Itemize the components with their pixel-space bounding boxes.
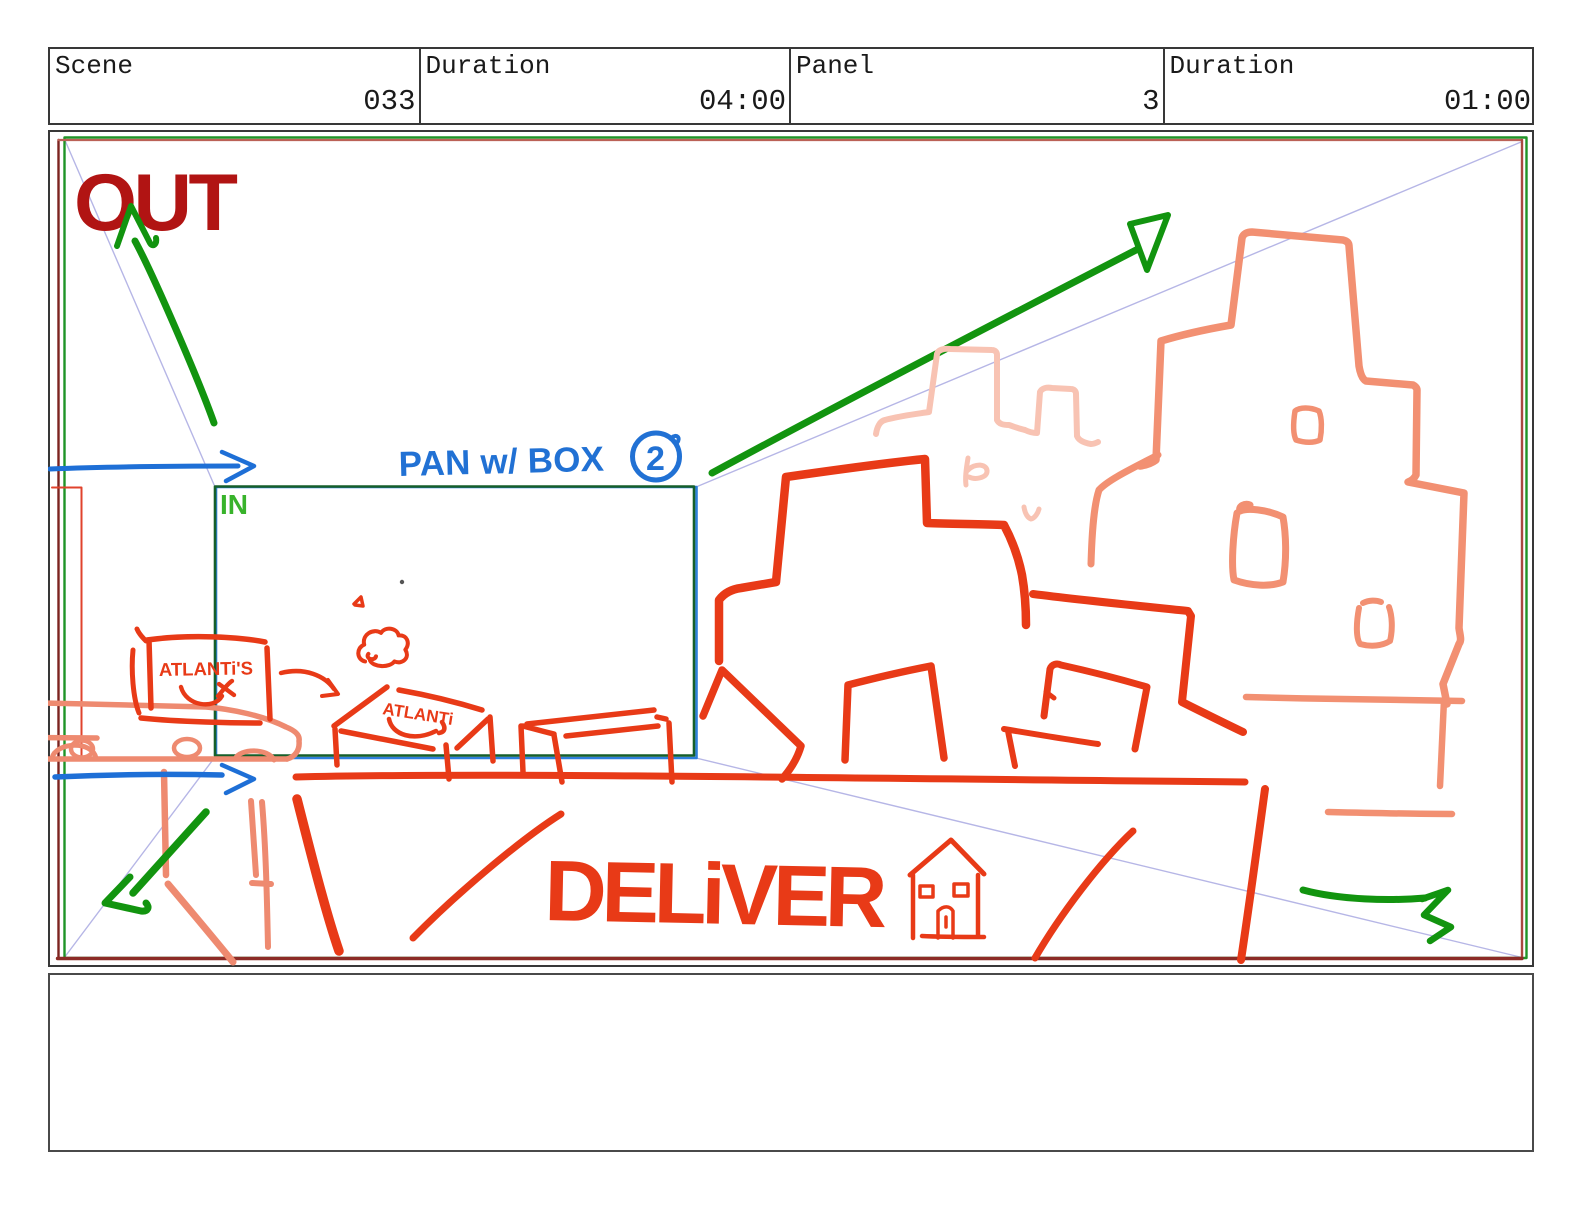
svg-text:2: 2 [646, 440, 665, 478]
svg-text:PAN w/ BOX: PAN w/ BOX [398, 440, 605, 484]
svg-text:ATLANTi'S: ATLANTi'S [159, 657, 254, 680]
svg-text:OUT: OUT [74, 158, 238, 248]
svg-text:IN: IN [220, 489, 248, 520]
svg-text:DELiVER: DELiVER [544, 843, 888, 946]
